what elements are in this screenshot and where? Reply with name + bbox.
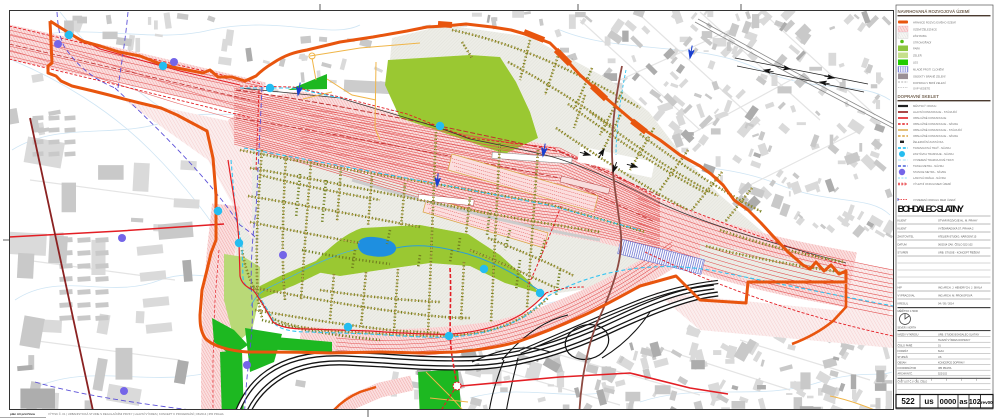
svg-text:us: us [924, 397, 934, 406]
svg-text:OVP VEDETE: OVP VEDETE [913, 87, 930, 91]
svg-text:HIP: HIP [898, 286, 903, 290]
svg-text:ING.ARCH. M. PROKOPOVÁ: ING.ARCH. M. PROKOPOVÁ [938, 294, 973, 298]
svg-text:0000: 0000 [940, 397, 957, 406]
svg-text:FORMÁT: FORMÁT [898, 350, 909, 353]
svg-text:522/102: 522/102 [938, 373, 948, 376]
svg-text:OBSAH: OBSAH [898, 361, 907, 364]
svg-text:TRASA METRA - NÁVRH: TRASA METRA - NÁVRH [913, 164, 944, 168]
svg-text:VÝLETNÍ OKRUH MEZI ÚZEMÍ: VÝLETNÍ OKRUH MEZI ÚZEMÍ [913, 182, 951, 186]
svg-text:ČÁST LIST Č.V.: ČÁST LIST Č.V. OBJ. ČÍSLO [898, 380, 928, 383]
svg-text:522: 522 [901, 397, 915, 406]
svg-text:NAVRHOVANÁ ROZVOJOVÁ ÚZEMÍ: NAVRHOVANÁ ROZVOJOVÁ ÚZEMÍ [898, 9, 971, 14]
svg-text:US: US [938, 356, 942, 359]
svg-text:ZÁSTAVBA: ZÁSTAVBA [913, 34, 927, 38]
svg-text:102: 102 [969, 399, 981, 406]
svg-text:DOPRAVA V BRNÍ ZELENÍ: DOPRAVA V BRNÍ ZELENÍ [913, 81, 946, 85]
svg-text:URB. STUDIE BOHDALEC-SLATINY: URB. STUDIE BOHDALEC-SLATINY [938, 333, 980, 336]
svg-text:ČÍSLO PARÉ: ČÍSLO PARÉ [898, 345, 913, 348]
svg-text:NÁZEV VÝKRESU: NÁZEV VÝKRESU [898, 333, 919, 336]
svg-text:STANICE METRA - NÁVRH: STANICE METRA - NÁVRH [913, 170, 946, 174]
svg-text:LANOVÁ DRÁHA - NÁVRH: LANOVÁ DRÁHA - NÁVRH [913, 176, 946, 180]
svg-text:KOORDINÁTOR: KOORDINÁTOR [898, 367, 917, 370]
svg-text:VYPRACOVAL: VYPRACOVAL [898, 294, 916, 298]
svg-text:ARCHIVNÍ Č.: ARCHIVNÍ Č. [898, 373, 913, 376]
svg-text:ZHOTOVITEL: ZHOTOVITEL [898, 235, 915, 239]
svg-text:BOHDALEC - SLATINY: BOHDALEC - SLATINY [898, 204, 965, 215]
svg-text:ATELIER-STUDIO, NÁRODNÍ 15: ATELIER-STUDIO, NÁRODNÍ 15 [938, 235, 977, 239]
svg-text:04 / 05 / 2014: 04 / 05 / 2014 [938, 302, 954, 306]
svg-text:8xA4: 8xA4 [938, 350, 944, 353]
svg-text:ING.ARCH. J. HENDRYCH, J. SKÁL: ING.ARCH. J. HENDRYCH, J. SKÁLA [938, 286, 982, 290]
svg-text:rev00: rev00 [981, 400, 993, 405]
svg-text:SEVER / NORTH: SEVER / NORTH [898, 327, 917, 330]
svg-text:PARK: PARK [913, 47, 920, 51]
svg-text:DATUM: DATUM [898, 243, 907, 247]
svg-text:KONCEPCE DOPRAVY: KONCEPCE DOPRAVY [938, 361, 965, 364]
svg-text:VÝTISK Č. 01 | URBANISTICKÁ ST: VÝTISK Č. 01 | URBANISTICKÁ STUDIE S REG… [48, 411, 224, 416]
svg-text:VYMEZENÍ OKRUHU MEZI ÚZEMÍ: VYMEZENÍ OKRUHU MEZI ÚZEMÍ [913, 198, 956, 202]
svg-text:plán A3 printView: plán A3 printView [10, 412, 36, 416]
svg-text:as: as [959, 397, 967, 406]
svg-text:LES: LES [913, 61, 918, 65]
svg-text:KRESLIL: KRESLIL [898, 302, 909, 306]
svg-text:DOPRAVNÍ SKELET: DOPRAVNÍ SKELET [898, 94, 940, 99]
svg-text:STUPEŇ: STUPEŇ [898, 356, 908, 359]
svg-text:KLIENT: KLIENT [898, 227, 907, 231]
svg-text:ZELEŇ: ZELEŇ [913, 54, 922, 58]
svg-text:ZASTÁVKA TRAMVAJE - NÁVRH: ZASTÁVKA TRAMVAJE - NÁVRH [913, 152, 954, 156]
svg-text:HLAVNÍ VÝKRES DOPRAVY: HLAVNÍ VÝKRES DOPRAVY [938, 339, 971, 342]
svg-text:HLAVNÍ KOMUNIKACE - STÁVAJÍCÍ: HLAVNÍ KOMUNIKACE - STÁVAJÍCÍ [913, 110, 957, 114]
svg-text:KLIENT: KLIENT [898, 219, 907, 223]
svg-text:IPR PRAHA: IPR PRAHA [938, 367, 952, 370]
